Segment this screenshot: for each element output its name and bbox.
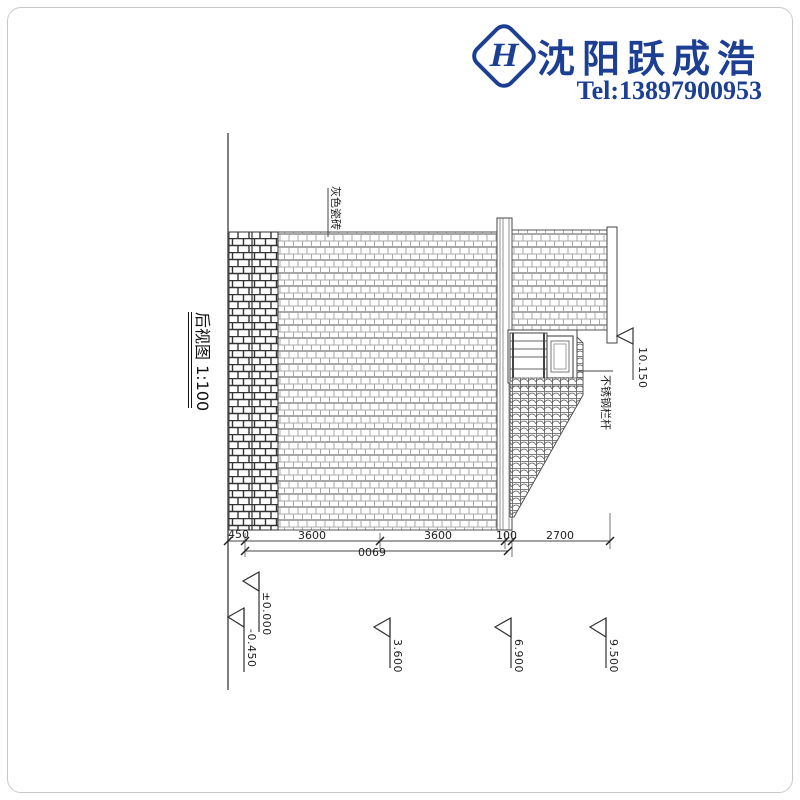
level-marker-top: [617, 328, 633, 344]
right-wall: [512, 230, 607, 330]
level-markers: [228, 572, 606, 672]
tile-course: [510, 378, 583, 386]
material-label: 灰色瓷砖: [328, 186, 342, 230]
level-6900: 6.900: [511, 639, 525, 673]
dim-3600-a: 3600: [298, 529, 326, 542]
parapet-band: [607, 227, 617, 343]
dim-3600-b: 3600: [424, 529, 452, 542]
level-top: 10.150: [635, 347, 649, 389]
level-zero: ±0.000: [259, 592, 273, 636]
level-minus: -0.450: [244, 629, 258, 667]
railing-label: 不锈钢栏杆: [598, 375, 612, 430]
corner-brick-strip: [229, 232, 278, 530]
view-title: 后视图 1:100: [188, 312, 209, 408]
level-3600: 3.600: [390, 639, 404, 673]
dim-100: 100: [496, 529, 517, 542]
dim-450: 450: [228, 528, 249, 541]
drawing-sheet: H 沈阳跃成浩 Tel:13897900953: [0, 0, 800, 800]
dim-2700: 2700: [546, 529, 574, 542]
dim-total: 0069: [358, 546, 386, 559]
elevation-linework: [0, 0, 800, 800]
level-9500: 9.500: [606, 639, 620, 673]
